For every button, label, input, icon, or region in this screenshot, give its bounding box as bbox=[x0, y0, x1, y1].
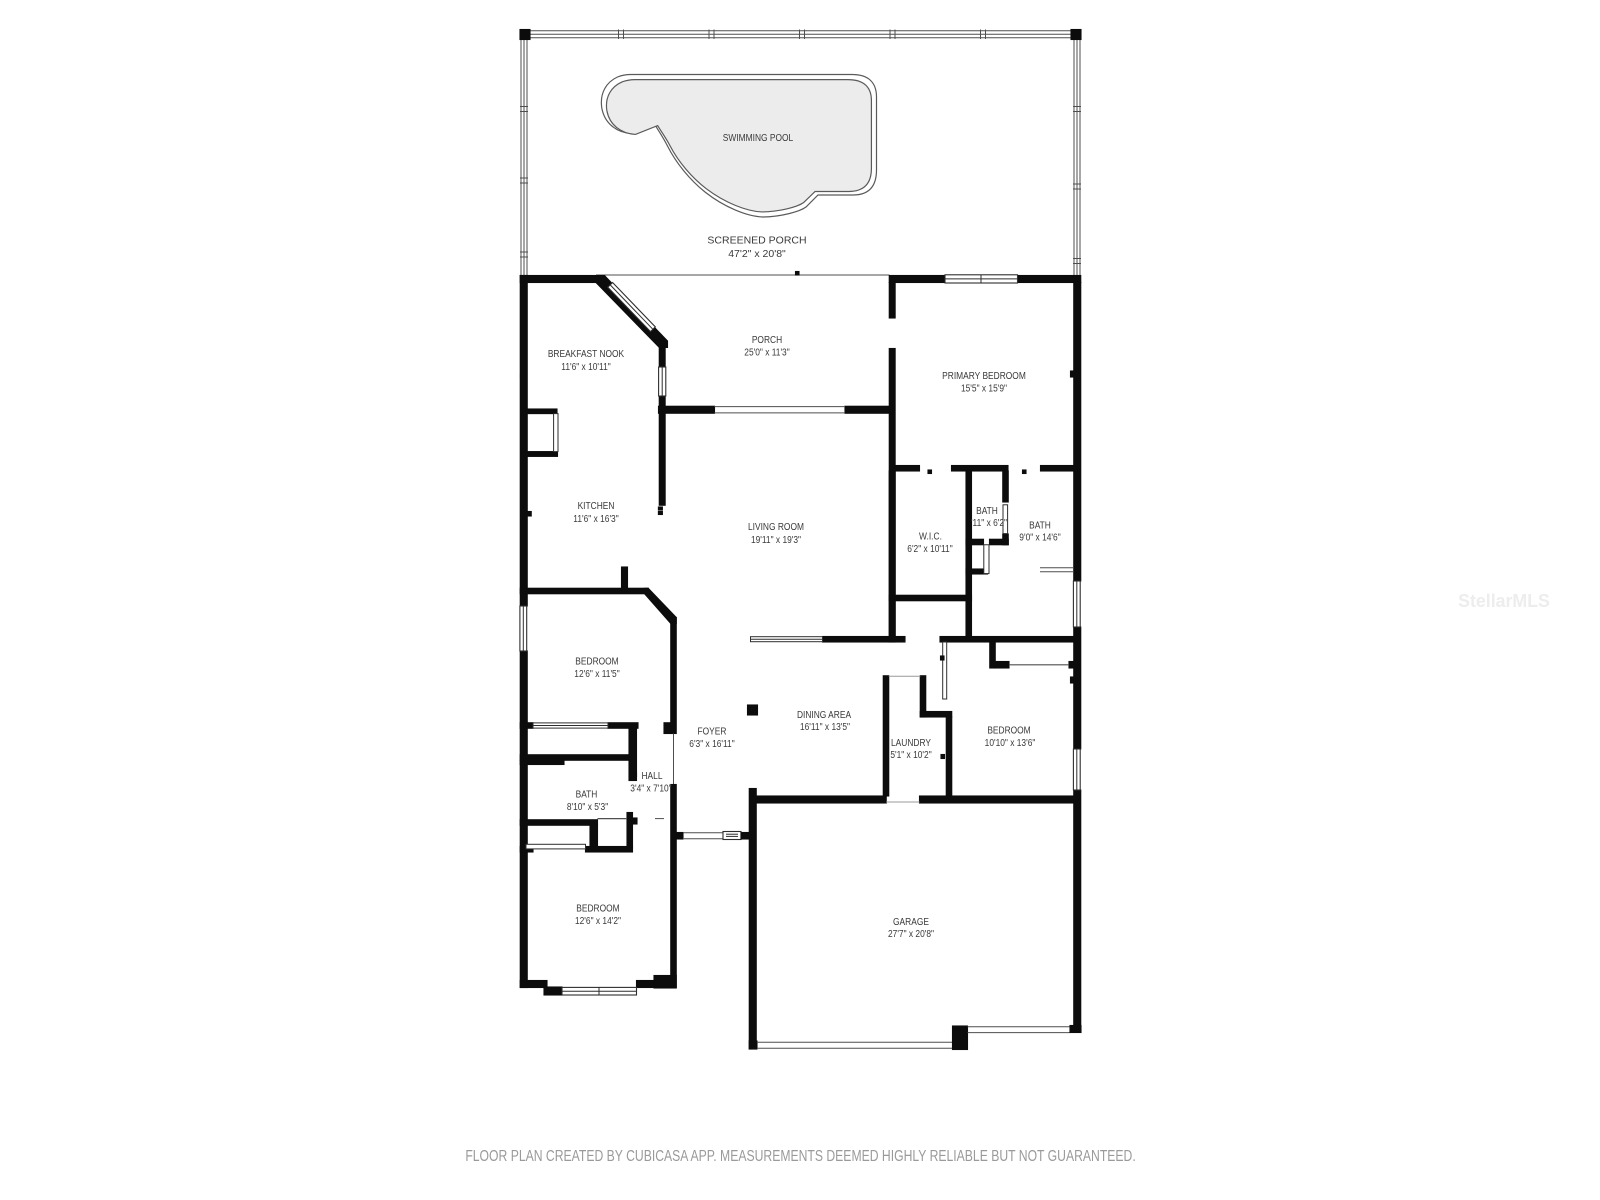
svg-text:PRIMARY BEDROOM: PRIMARY BEDROOM bbox=[942, 370, 1026, 382]
svg-text:GARAGE: GARAGE bbox=[893, 916, 929, 928]
svg-text:SCREENED PORCH: SCREENED PORCH bbox=[707, 235, 806, 247]
svg-text:27'7" x 20'8": 27'7" x 20'8" bbox=[888, 928, 934, 940]
svg-text:10'10" x 13'6": 10'10" x 13'6" bbox=[985, 737, 1036, 749]
svg-text:16'11" x 13'5": 16'11" x 13'5" bbox=[800, 721, 850, 733]
svg-text:BEDROOM: BEDROOM bbox=[576, 903, 619, 915]
svg-text:BEDROOM: BEDROOM bbox=[575, 656, 618, 668]
svg-text:3'4" x 7'10": 3'4" x 7'10" bbox=[630, 783, 671, 795]
svg-text:6'2" x 10'11": 6'2" x 10'11" bbox=[907, 543, 952, 555]
svg-text:47'2" x 20'8": 47'2" x 20'8" bbox=[728, 248, 786, 260]
svg-text:PORCH: PORCH bbox=[752, 334, 782, 346]
svg-text:SWIMMING POOL: SWIMMING POOL bbox=[723, 132, 793, 144]
svg-text:19'11" x 19'3": 19'11" x 19'3" bbox=[751, 534, 801, 546]
svg-text:BATH: BATH bbox=[1029, 520, 1051, 532]
svg-text:'11" x 6'2": '11" x 6'2" bbox=[971, 517, 1007, 529]
svg-text:FLOOR PLAN CREATED BY CUBICASA: FLOOR PLAN CREATED BY CUBICASA APP. MEAS… bbox=[465, 1147, 1135, 1165]
svg-text:8'10" x 5'3": 8'10" x 5'3" bbox=[567, 801, 608, 813]
svg-text:11'6" x 16'3": 11'6" x 16'3" bbox=[573, 513, 618, 525]
svg-text:W.I.C.: W.I.C. bbox=[919, 531, 942, 543]
svg-text:12'6" x 11'5": 12'6" x 11'5" bbox=[574, 668, 619, 680]
svg-text:25'0" x 11'3": 25'0" x 11'3" bbox=[744, 347, 789, 359]
svg-text:12'6" x 14'2": 12'6" x 14'2" bbox=[575, 915, 621, 927]
svg-text:6'3" x 16'11": 6'3" x 16'11" bbox=[689, 738, 734, 750]
svg-text:HALL: HALL bbox=[642, 770, 663, 782]
svg-text:StellarMLS: StellarMLS bbox=[1458, 591, 1550, 611]
svg-text:BATH: BATH bbox=[976, 505, 998, 517]
svg-text:FOYER: FOYER bbox=[698, 726, 727, 738]
svg-text:LAUNDRY: LAUNDRY bbox=[891, 737, 932, 749]
svg-text:9'0" x 14'6": 9'0" x 14'6" bbox=[1019, 532, 1060, 544]
svg-text:DINING AREA: DINING AREA bbox=[797, 709, 852, 721]
svg-text:BREAKFAST NOOK: BREAKFAST NOOK bbox=[548, 348, 625, 360]
svg-text:LIVING ROOM: LIVING ROOM bbox=[748, 521, 804, 533]
svg-text:15'5" x 15'9": 15'5" x 15'9" bbox=[961, 383, 1007, 395]
svg-text:5'1" x 10'2": 5'1" x 10'2" bbox=[890, 749, 931, 761]
svg-text:KITCHEN: KITCHEN bbox=[578, 500, 615, 512]
svg-text:BATH: BATH bbox=[576, 789, 598, 801]
svg-text:BEDROOM: BEDROOM bbox=[987, 725, 1030, 737]
svg-text:11'6" x 10'11": 11'6" x 10'11" bbox=[561, 361, 610, 373]
